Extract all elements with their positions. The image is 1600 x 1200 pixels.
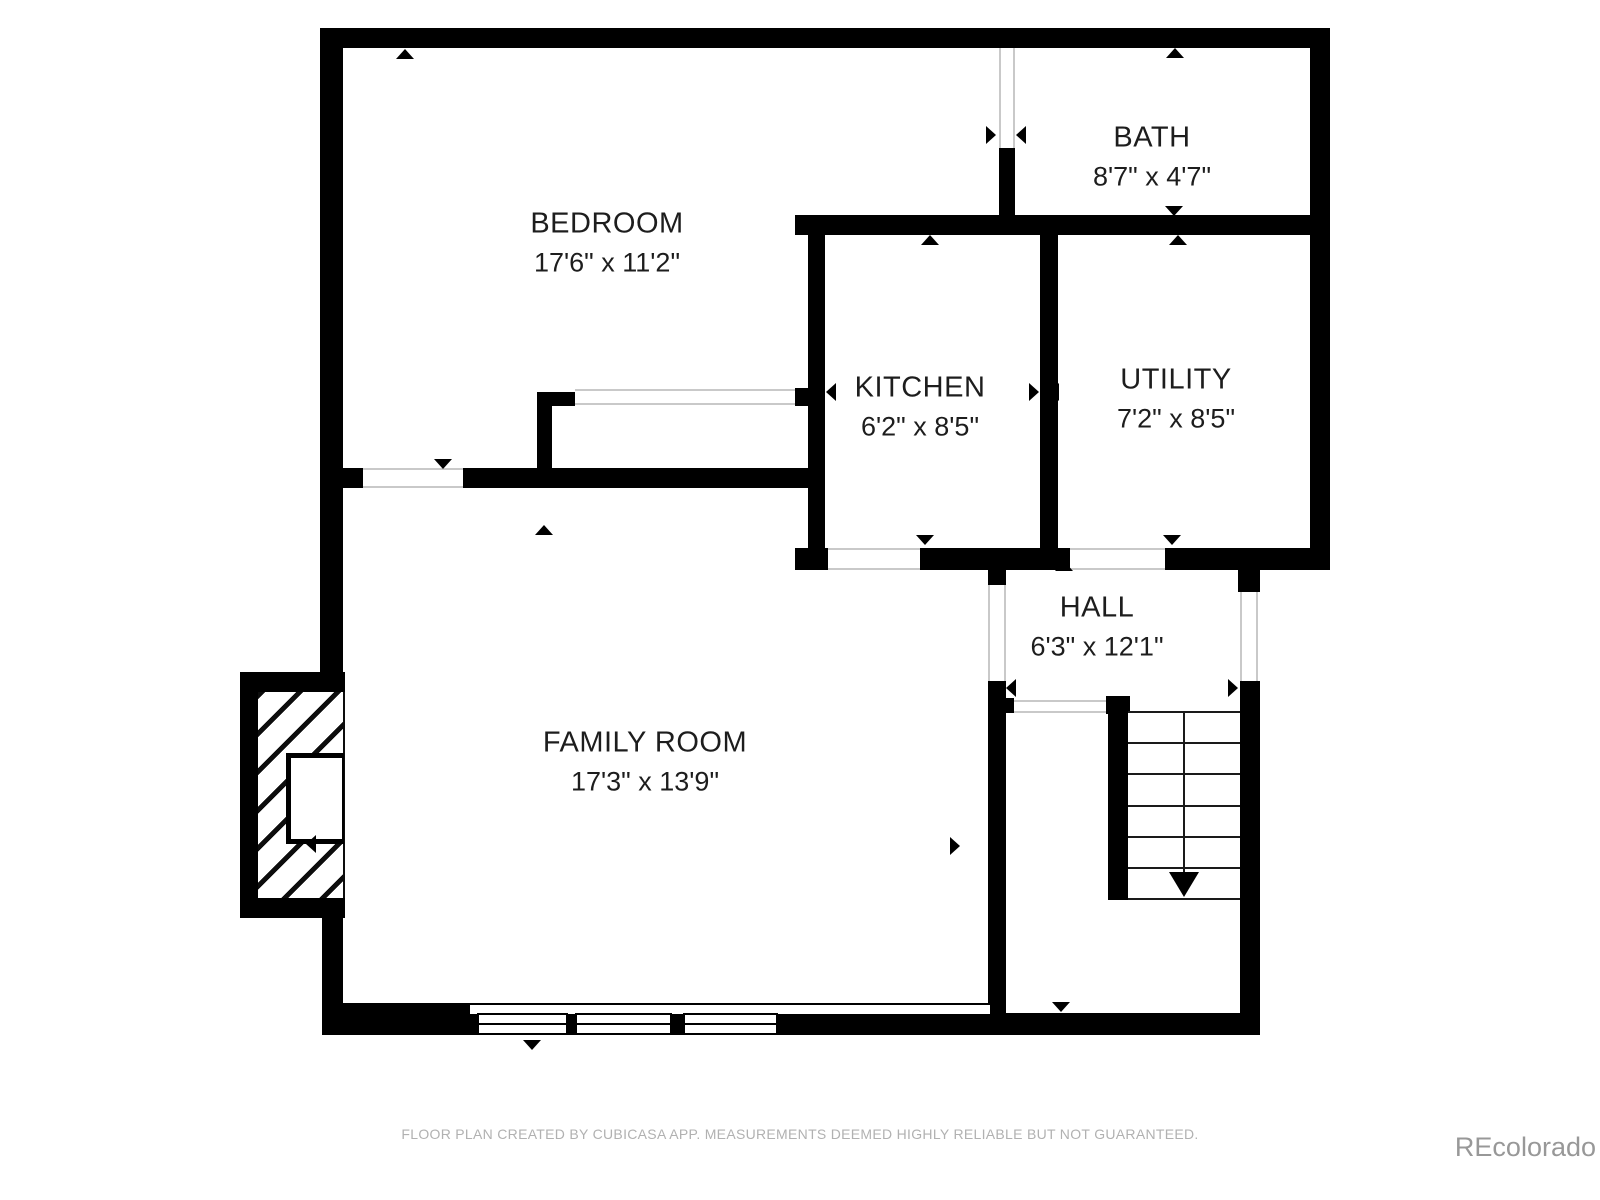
room-label-family-room: FAMILY ROOM17'3" x 13'9" bbox=[543, 727, 747, 798]
room-label-hall: HALL6'3" x 12'1" bbox=[1030, 592, 1163, 663]
room-label-bath: BATH8'7" x 4'7" bbox=[1093, 122, 1211, 193]
direction-marker-icon bbox=[950, 837, 960, 855]
direction-marker-icon bbox=[306, 835, 316, 853]
wall bbox=[1006, 698, 1014, 713]
fireplace-firebox bbox=[286, 753, 344, 844]
direction-marker-icon bbox=[1163, 535, 1181, 545]
room-dimensions: 6'3" x 12'1" bbox=[1030, 632, 1163, 663]
wall bbox=[795, 388, 809, 406]
wall bbox=[320, 28, 1330, 48]
direction-marker-icon bbox=[1228, 679, 1238, 697]
direction-marker-icon bbox=[1165, 206, 1183, 216]
room-dimensions: 7'2" x 8'5" bbox=[1117, 404, 1235, 435]
room-dimensions: 8'7" x 4'7" bbox=[1093, 162, 1211, 193]
direction-marker-icon bbox=[1006, 679, 1016, 697]
closet-slider-opening bbox=[575, 389, 795, 405]
stair-opening bbox=[1014, 700, 1106, 713]
direction-marker-icon bbox=[1320, 381, 1330, 399]
room-label-bedroom: BEDROOM17'6" x 11'2" bbox=[530, 208, 683, 279]
floor-plan-canvas: BEDROOM17'6" x 11'2"BATH8'7" x 4'7"KITCH… bbox=[0, 0, 1600, 1200]
window bbox=[683, 1013, 778, 1035]
wall bbox=[988, 681, 1006, 1035]
room-name: FAMILY ROOM bbox=[543, 727, 747, 760]
direction-marker-icon bbox=[396, 49, 414, 59]
footer-disclaimer: FLOOR PLAN CREATED BY CUBICASA APP. MEAS… bbox=[0, 1126, 1600, 1142]
room-name: UTILITY bbox=[1117, 364, 1235, 397]
direction-marker-icon bbox=[986, 126, 996, 144]
window-pane-line bbox=[577, 1023, 670, 1025]
wall bbox=[1310, 28, 1330, 568]
direction-marker-icon bbox=[916, 535, 934, 545]
direction-marker-icon bbox=[1049, 383, 1059, 401]
room-name: KITCHEN bbox=[855, 372, 986, 405]
wall bbox=[320, 486, 343, 674]
wall bbox=[795, 215, 1330, 235]
hall-passage-opening bbox=[988, 585, 1006, 681]
room-dimensions: 17'6" x 11'2" bbox=[530, 248, 683, 279]
window-pane-line bbox=[685, 1023, 776, 1025]
wall bbox=[1238, 560, 1260, 592]
stair-direction-line bbox=[1183, 713, 1185, 873]
room-name: BEDROOM bbox=[530, 208, 683, 241]
direction-marker-icon bbox=[1320, 126, 1330, 144]
hall-window bbox=[1240, 592, 1258, 681]
direction-marker-icon bbox=[1052, 1002, 1070, 1012]
direction-marker-icon bbox=[535, 525, 553, 535]
wall bbox=[1240, 681, 1260, 1035]
wall bbox=[1108, 696, 1128, 900]
direction-marker-icon bbox=[1055, 561, 1073, 571]
direction-marker-icon bbox=[1029, 383, 1039, 401]
wall bbox=[240, 672, 258, 918]
bedroom-door-opening bbox=[363, 468, 463, 488]
wall bbox=[240, 898, 345, 918]
room-name: BATH bbox=[1093, 122, 1211, 155]
direction-marker-icon bbox=[921, 235, 939, 245]
room-label-utility: UTILITY7'2" x 8'5" bbox=[1117, 364, 1235, 435]
utility-door-opening bbox=[1070, 548, 1165, 570]
room-label-kitchen: KITCHEN6'2" x 8'5" bbox=[855, 372, 986, 443]
stair-tread bbox=[1128, 898, 1240, 900]
direction-marker-icon bbox=[523, 1040, 541, 1050]
direction-marker-icon bbox=[1169, 235, 1187, 245]
wall bbox=[990, 1013, 1260, 1035]
bath-door-opening bbox=[999, 48, 1015, 148]
wall bbox=[808, 232, 825, 552]
direction-marker-icon bbox=[434, 459, 452, 469]
direction-marker-icon bbox=[1016, 126, 1026, 144]
watermark-recolorado: REcolorado bbox=[1455, 1132, 1596, 1163]
wall bbox=[537, 392, 575, 406]
wall bbox=[322, 1003, 472, 1035]
stair-down-arrow-icon bbox=[1169, 872, 1199, 897]
window bbox=[575, 1013, 672, 1035]
kitchen-door-opening bbox=[828, 548, 920, 570]
direction-marker-icon bbox=[1166, 48, 1184, 58]
room-name: HALL bbox=[1030, 592, 1163, 625]
wall bbox=[320, 28, 343, 472]
wall bbox=[999, 148, 1015, 218]
room-dimensions: 6'2" x 8'5" bbox=[855, 412, 986, 443]
window-pane-line bbox=[479, 1023, 566, 1025]
staircase bbox=[1128, 711, 1240, 898]
direction-marker-icon bbox=[826, 383, 836, 401]
room-dimensions: 17'3" x 13'9" bbox=[543, 767, 747, 798]
direction-marker-icon bbox=[331, 126, 341, 144]
window bbox=[477, 1013, 568, 1035]
